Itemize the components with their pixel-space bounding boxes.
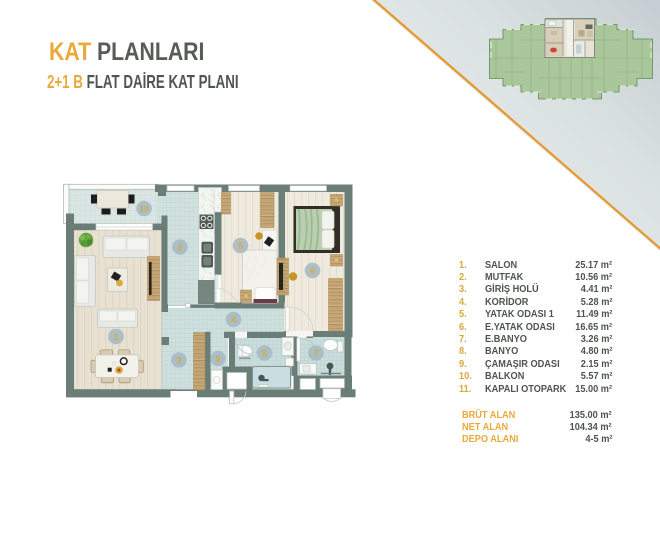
svg-text:6: 6 bbox=[310, 266, 315, 276]
svg-text:10: 10 bbox=[140, 205, 149, 214]
svg-text:3: 3 bbox=[176, 356, 181, 366]
svg-text:4: 4 bbox=[231, 315, 236, 325]
svg-text:5: 5 bbox=[238, 241, 243, 251]
svg-text:8: 8 bbox=[262, 349, 267, 359]
svg-text:2: 2 bbox=[177, 243, 182, 253]
svg-text:9: 9 bbox=[215, 354, 220, 364]
svg-text:1: 1 bbox=[113, 332, 118, 342]
svg-text:7: 7 bbox=[313, 349, 318, 359]
